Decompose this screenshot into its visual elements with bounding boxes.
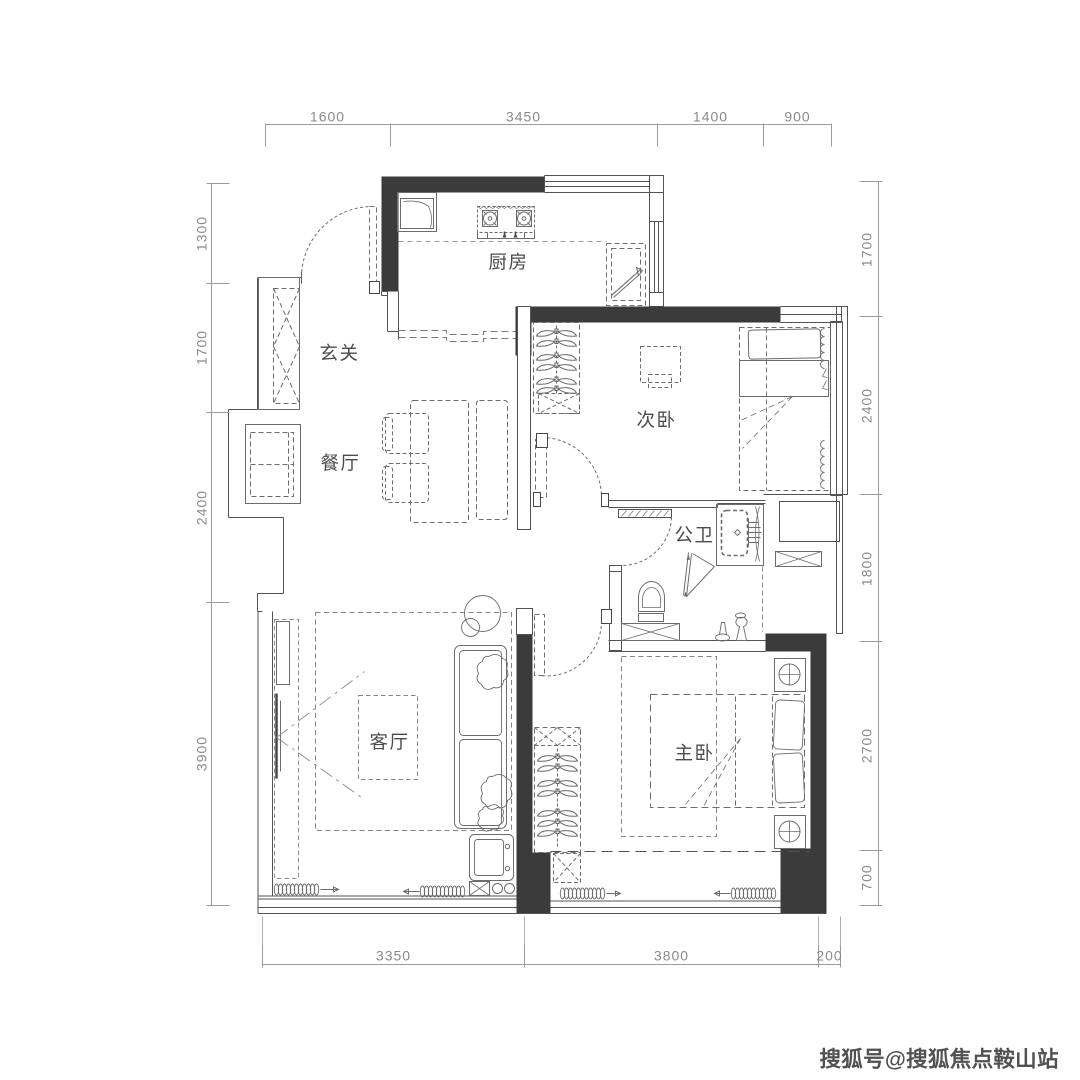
- svg-text:3800: 3800: [654, 948, 689, 964]
- svg-text:2400: 2400: [859, 388, 875, 423]
- svg-text:3450: 3450: [506, 109, 541, 125]
- svg-text:客厅: 客厅: [370, 732, 410, 753]
- svg-text:公卫: 公卫: [675, 525, 715, 546]
- svg-text:3350: 3350: [376, 948, 411, 964]
- svg-text:厨房: 厨房: [489, 252, 529, 273]
- svg-text:餐厅: 餐厅: [321, 453, 361, 474]
- svg-text:2700: 2700: [859, 728, 875, 763]
- svg-text:2400: 2400: [194, 490, 210, 525]
- svg-text:1400: 1400: [693, 109, 728, 125]
- svg-text:玄关: 玄关: [320, 343, 360, 364]
- svg-text:1700: 1700: [194, 330, 210, 365]
- svg-text:1800: 1800: [859, 551, 875, 586]
- svg-text:3900: 3900: [194, 736, 210, 771]
- svg-text:搜狐号@搜狐焦点鞍山站: 搜狐号@搜狐焦点鞍山站: [820, 1047, 1059, 1072]
- svg-text:主卧: 主卧: [675, 743, 715, 764]
- svg-text:900: 900: [784, 109, 810, 125]
- svg-text:1700: 1700: [859, 232, 875, 267]
- svg-text:200: 200: [816, 948, 842, 964]
- svg-text:次卧: 次卧: [637, 410, 677, 431]
- svg-text:1300: 1300: [194, 216, 210, 251]
- svg-text:700: 700: [859, 864, 875, 890]
- svg-text:1600: 1600: [310, 109, 345, 125]
